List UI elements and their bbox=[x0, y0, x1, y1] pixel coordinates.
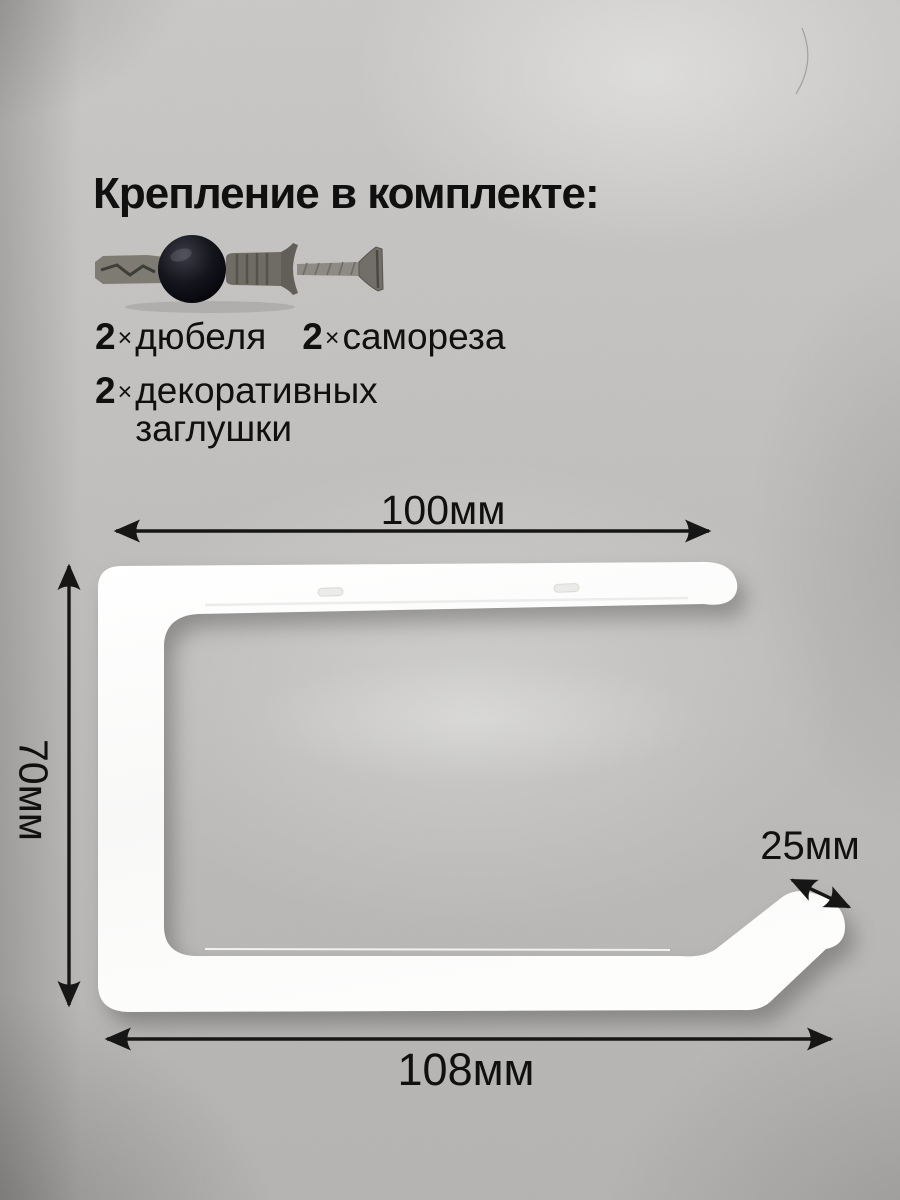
bracket-bottom-fold-line bbox=[205, 949, 670, 950]
bracket-diagram bbox=[0, 0, 900, 1200]
wall-crack bbox=[796, 28, 808, 94]
bracket-shape bbox=[98, 562, 845, 1012]
dimension-label-hook-depth: 25мм bbox=[760, 824, 860, 869]
dimension-label-bottom-width: 108мм bbox=[398, 1044, 535, 1096]
dimension-label-top-width: 100мм bbox=[381, 487, 506, 534]
dimension-label-left-height: 70мм bbox=[10, 739, 57, 841]
product-dimension-image: Крепление в комплекте: bbox=[0, 0, 900, 1200]
screw-hole-left bbox=[318, 588, 343, 597]
screw-hole-right bbox=[554, 584, 579, 593]
